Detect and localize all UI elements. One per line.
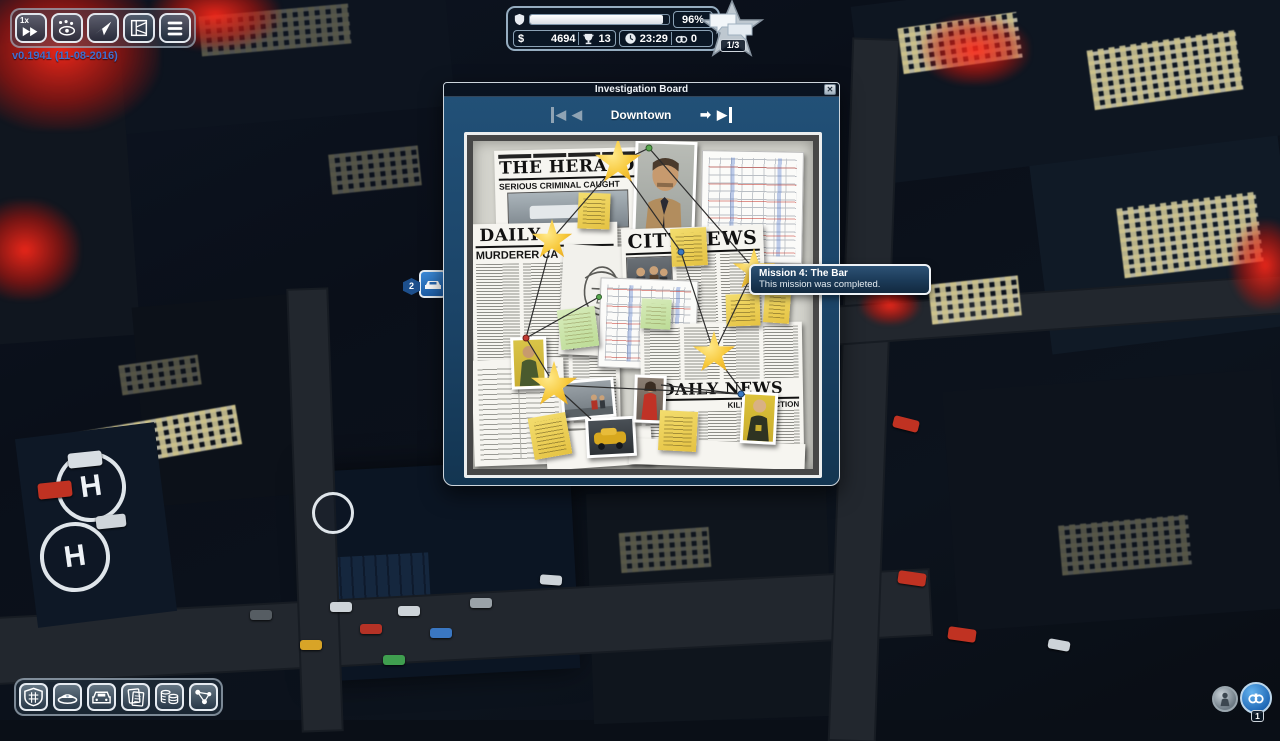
- first-district-button[interactable]: ◀: [551, 107, 566, 123]
- dialog-title: Investigation Board: [444, 83, 839, 97]
- reputation-row: 96%: [513, 10, 713, 29]
- reputation-fill: [530, 15, 663, 24]
- text-column: [644, 328, 680, 381]
- civilian-button[interactable]: [1212, 686, 1238, 712]
- rooftop-ring: [312, 492, 354, 534]
- patrol-car-marker[interactable]: 2: [413, 266, 447, 300]
- sticky-note-yellow: [528, 412, 573, 460]
- building-windows: [619, 527, 712, 573]
- car: [470, 598, 492, 608]
- bottom-toolbar: [14, 678, 223, 716]
- photo-taxi: [585, 416, 637, 459]
- note-scribbles: [645, 303, 666, 324]
- top-toolbar: 1x: [10, 8, 196, 48]
- street-scene-image: [563, 380, 614, 418]
- car: [250, 610, 272, 620]
- case-files-icon: [125, 687, 146, 707]
- task-list-icon: [164, 18, 186, 38]
- arrest-count-badge: 1: [1251, 710, 1264, 722]
- district-map-button[interactable]: [123, 13, 155, 43]
- strip: [498, 154, 531, 159]
- car: [383, 655, 405, 665]
- police-car-icon: [91, 687, 112, 707]
- car: [330, 602, 352, 612]
- note-scribbles: [583, 198, 606, 225]
- last-district-button[interactable]: ▶: [717, 107, 732, 123]
- alert-glow: [0, 200, 80, 300]
- bald-man-image: [743, 394, 775, 442]
- previous-district-button[interactable]: ◀: [572, 107, 582, 123]
- text-column: [762, 326, 798, 379]
- sticky-note-green: [557, 306, 600, 350]
- stats-row: $ 4694 13 23:29 0: [513, 29, 713, 48]
- mission-tooltip-body: This mission was completed.: [759, 279, 921, 290]
- arrested-suspect-button[interactable]: 1: [1240, 682, 1272, 714]
- district-navigation: ◀ ◀ Downtown ➡ ▶: [444, 97, 839, 133]
- time-value: 23:29: [640, 33, 668, 45]
- alert-glow: [1230, 220, 1280, 310]
- dollar-icon: $: [518, 33, 524, 45]
- vehicles-button[interactable]: [87, 683, 116, 711]
- bottom-right-group: 1: [1212, 682, 1272, 714]
- handcuffs-icon: [675, 32, 688, 45]
- next-district-button[interactable]: ➡: [700, 107, 711, 123]
- corkboard: THE HERALD SERIOUS CRIMINAL CAUGHT: [473, 141, 813, 469]
- helipad-label: H: [78, 469, 104, 506]
- shield-icon: [513, 13, 526, 26]
- corkboard-frame: THE HERALD SERIOUS CRIMINAL CAUGHT: [464, 132, 822, 478]
- task-list-button[interactable]: [159, 13, 191, 43]
- civilian-icon: [1217, 691, 1233, 707]
- criminal-network-button[interactable]: [189, 683, 218, 711]
- missions-progress-badge: 1/3: [720, 39, 746, 52]
- taxi-figure: [588, 419, 634, 455]
- building-windows: [328, 145, 422, 194]
- precinct-button[interactable]: [19, 683, 48, 711]
- trophy-icon: [582, 32, 595, 45]
- note-scribbles: [663, 415, 693, 446]
- close-button[interactable]: ✕: [824, 84, 836, 95]
- car: [947, 626, 977, 643]
- criminal-network-icon: [193, 687, 214, 707]
- district-map-icon: [128, 18, 150, 38]
- mission-tooltip-title: Mission 4: The Bar: [759, 268, 921, 279]
- arrest-count: 0: [691, 33, 697, 45]
- taxi-image: [588, 419, 634, 455]
- navigation-arrow-icon: [92, 18, 114, 38]
- sticky-note-yellow: [577, 192, 610, 229]
- trophy-count: 13: [598, 33, 610, 45]
- car: [430, 628, 452, 638]
- building: [942, 369, 1280, 631]
- note-scribbles: [675, 232, 702, 261]
- game-speed-button[interactable]: 1x: [15, 13, 47, 43]
- patrol-routes-button[interactable]: [51, 13, 83, 43]
- precinct-shield-icon: [23, 687, 44, 707]
- personnel-button[interactable]: [53, 683, 82, 711]
- strip: [533, 153, 566, 158]
- car: [360, 624, 382, 634]
- note-scribbles: [768, 295, 785, 318]
- mission-tooltip: Mission 4: The Bar This mission was comp…: [749, 264, 931, 295]
- hud-panel: 96% $ 4694 13 23:29: [506, 6, 720, 51]
- sticky-note-yellow: [670, 227, 708, 267]
- patrol-eye-icon: [56, 18, 78, 38]
- strip: [568, 152, 601, 157]
- handcuffs-icon: [1247, 689, 1265, 707]
- money-value: 4694: [527, 33, 575, 45]
- alert-glow: [920, 15, 1030, 85]
- sticky-note-yellow: [658, 410, 698, 452]
- sticky-note-yellow: [725, 293, 760, 326]
- divider: [578, 32, 579, 45]
- reputation-bar: [529, 14, 670, 25]
- text-column: [723, 326, 759, 379]
- money-trophy-box: $ 4694 13: [513, 30, 616, 47]
- police-cap-icon: [57, 687, 78, 707]
- car: [300, 640, 322, 650]
- photo-bald-man: [740, 391, 779, 445]
- navigation-button[interactable]: [87, 13, 119, 43]
- corkboard-dark-frame: THE HERALD SERIOUS CRIMINAL CAUGHT: [467, 135, 819, 475]
- nav-left-group: ◀ ◀: [551, 107, 582, 123]
- district-name: Downtown: [596, 108, 686, 122]
- divider: [671, 32, 672, 45]
- note-scribbles: [533, 418, 566, 454]
- missions-badge-button[interactable]: 1/3: [698, 0, 766, 58]
- version-label: v0.1941 (11-08-2016): [12, 50, 118, 62]
- bald-man-figure: [743, 394, 775, 442]
- dialog-titlebar: Investigation Board ✕: [444, 83, 839, 97]
- speed-label: 1x: [20, 16, 29, 25]
- car: [892, 415, 920, 433]
- police-car-icon: [423, 277, 443, 291]
- nav-right-group: ➡ ▶: [700, 107, 732, 123]
- clock-icon: [624, 32, 637, 45]
- finances-button[interactable]: [155, 683, 184, 711]
- car: [540, 574, 563, 586]
- finances-icon: [159, 687, 180, 707]
- car: [398, 606, 420, 616]
- loose-sheet: [629, 438, 806, 469]
- sticky-note-yellow: [763, 290, 791, 324]
- car: [1047, 638, 1070, 652]
- sticky-note-green: [640, 298, 672, 330]
- note-scribbles: [731, 299, 756, 322]
- street-figures: [563, 380, 614, 418]
- case-files-button[interactable]: [121, 683, 150, 711]
- helipad-label: H: [62, 539, 88, 576]
- note-scribbles: [562, 311, 593, 344]
